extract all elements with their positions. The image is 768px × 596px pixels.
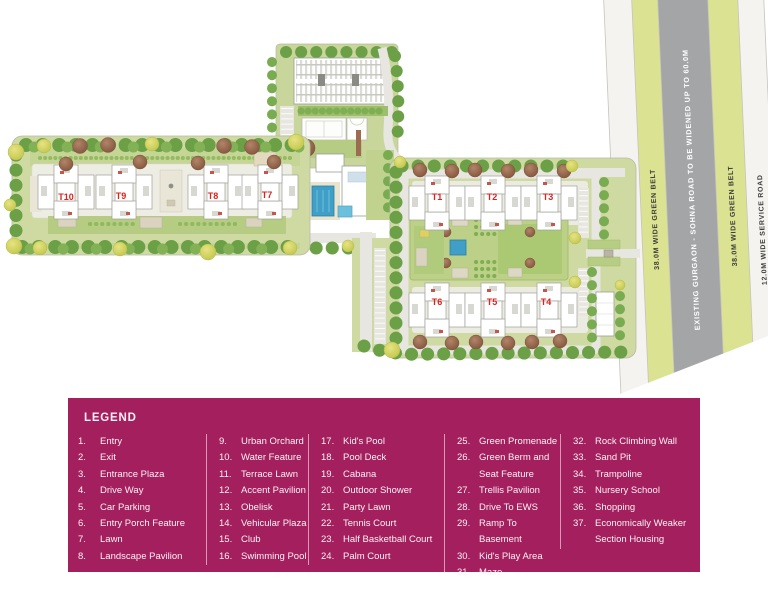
legend-column: 32.Rock Climbing Wall33.Sand Pit34.Tramp…: [560, 434, 700, 549]
legend-item: 16.Swimming Pool: [219, 549, 308, 565]
legend-item: 15.Club: [219, 532, 308, 548]
legend-item-number: 6.: [78, 516, 100, 532]
tower-label-t4: T4: [541, 297, 552, 307]
legend-item-label: Palm Court: [343, 549, 444, 565]
legend-item-number: 37.: [573, 516, 595, 549]
legend-item-number: 15.: [219, 532, 241, 548]
legend-item-label: Drive To EWS: [479, 500, 560, 516]
west-road: [360, 232, 372, 352]
legend-item: 14.Vehicular Plaza: [219, 516, 308, 532]
legend-item: 24.Palm Court: [321, 549, 444, 565]
legend-column: 9.Urban Orchard10.Water Feature11.Terrac…: [206, 434, 308, 565]
legend-item-number: 10.: [219, 450, 241, 466]
legend-item-label: Club: [241, 532, 308, 548]
legend-item: 22.Tennis Court: [321, 516, 444, 532]
entry-gate-north: [588, 240, 620, 249]
legend-item-number: 17.: [321, 434, 343, 450]
legend-item: 11.Terrace Lawn: [219, 467, 308, 483]
legend-item-number: 8.: [78, 549, 100, 565]
legend-item: 34.Trampoline: [573, 467, 700, 483]
legend-item-number: 28.: [457, 500, 479, 516]
legend-item-label: Nursery School: [595, 483, 700, 499]
legend-item-number: 4.: [78, 483, 100, 499]
legend-item: 8.Landscape Pavilion: [78, 549, 206, 565]
legend-item: 20.Outdoor Shower: [321, 483, 444, 499]
legend-item-label: Green Berm and Seat Feature: [479, 450, 560, 483]
legend-item-label: Kid's Play Area: [479, 549, 560, 565]
legend-item-number: 35.: [573, 483, 595, 499]
legend-item-number: 5.: [78, 500, 100, 516]
legend-item: 29.Ramp To Basement: [457, 516, 560, 549]
tower-label-t5: T5: [487, 297, 498, 307]
legend-item: 12.Accent Pavilion: [219, 483, 308, 499]
sand-pit: [420, 230, 429, 237]
legend-item-number: 26.: [457, 450, 479, 483]
tower-label-t10: T10: [58, 192, 74, 202]
legend-item: 33.Sand Pit: [573, 450, 700, 466]
legend-item-label: Sand Pit: [595, 450, 700, 466]
legend-item-label: Tennis Court: [343, 516, 444, 532]
legend-item-number: 13.: [219, 500, 241, 516]
legend-item: 3.Entrance Plaza: [78, 467, 206, 483]
legend-item-number: 16.: [219, 549, 241, 565]
tower-label-t6: T6: [432, 297, 443, 307]
legend-item-label: Water Feature: [241, 450, 308, 466]
legend-item: 37.Economically Weaker Section Housing: [573, 516, 700, 549]
legend-item-number: 29.: [457, 516, 479, 549]
legend-item-number: 34.: [573, 467, 595, 483]
tower-label-t8: T8: [208, 191, 219, 201]
legend-item-number: 22.: [321, 516, 343, 532]
legend-item-label: Outdoor Shower: [343, 483, 444, 499]
legend-panel: LEGEND 1.Entry2.Exit3.Entrance Plaza4.Dr…: [68, 398, 700, 572]
legend-item-number: 32.: [573, 434, 595, 450]
tower-label-t3: T3: [543, 192, 554, 202]
legend-columns: 1.Entry2.Exit3.Entrance Plaza4.Drive Way…: [78, 434, 700, 582]
legend-item: 18.Pool Deck: [321, 450, 444, 466]
legend-item-label: Half Basketball Court: [343, 532, 444, 548]
legend-item-number: 30.: [457, 549, 479, 565]
legend-item: 32.Rock Climbing Wall: [573, 434, 700, 450]
legend-item-label: Entry Porch Feature: [100, 516, 206, 532]
legend-item-label: Drive Way: [100, 483, 206, 499]
legend-item-label: Pool Deck: [343, 450, 444, 466]
legend-item-number: 24.: [321, 549, 343, 565]
legend-item: 4.Drive Way: [78, 483, 206, 499]
legend-item-number: 27.: [457, 483, 479, 499]
legend-item-label: Urban Orchard: [241, 434, 308, 450]
legend-item: 21.Party Lawn: [321, 500, 444, 516]
site-plan-page: 12.0M WIDE SERVICE ROAD 38.0M WIDE GREEN…: [0, 0, 768, 596]
legend-item-number: 12.: [219, 483, 241, 499]
legend-item: 1.Entry: [78, 434, 206, 450]
legend-item-label: Trellis Pavilion: [479, 483, 560, 499]
legend-item: 25.Green Promenade: [457, 434, 560, 450]
legend-item: 28.Drive To EWS: [457, 500, 560, 516]
tower-label-t2: T2: [487, 192, 498, 202]
legend-item: 2.Exit: [78, 450, 206, 466]
legend-item: 30.Kid's Play Area: [457, 549, 560, 565]
legend-item: 9.Urban Orchard: [219, 434, 308, 450]
legend-item-label: Party Lawn: [343, 500, 444, 516]
legend-item-label: Terrace Lawn: [241, 467, 308, 483]
legend-item: 17.Kid's Pool: [321, 434, 444, 450]
legend-item-number: 1.: [78, 434, 100, 450]
legend-item: 26.Green Berm and Seat Feature: [457, 450, 560, 483]
legend-item-number: 31.: [457, 565, 479, 581]
legend-item-label: Maze: [479, 565, 560, 581]
legend-item-label: Green Promenade: [479, 434, 560, 450]
car-icon: [604, 250, 613, 257]
legend-item-number: 14.: [219, 516, 241, 532]
legend-item-label: Cabana: [343, 467, 444, 483]
entry-gate-south: [588, 257, 620, 266]
legend-item-label: Shopping: [595, 500, 700, 516]
left-wing: T10 T9 T8 T7: [4, 134, 310, 260]
legend-item-label: Accent Pavilion: [241, 483, 308, 499]
legend-item: 31.Maze: [457, 565, 560, 581]
legend-item: 6.Entry Porch Feature: [78, 516, 206, 532]
legend-item-number: 23.: [321, 532, 343, 548]
legend-title: LEGEND: [84, 412, 700, 424]
legend-item-label: Trampoline: [595, 467, 700, 483]
legend-item-label: Economically Weaker Section Housing: [595, 516, 700, 549]
legend-item-number: 21.: [321, 500, 343, 516]
legend-item-number: 2.: [78, 450, 100, 466]
legend-column: 1.Entry2.Exit3.Entrance Plaza4.Drive Way…: [78, 434, 206, 565]
legend-item-number: 11.: [219, 467, 241, 483]
legend-item: 36.Shopping: [573, 500, 700, 516]
legend-item-label: Vehicular Plaza: [241, 516, 308, 532]
legend-item-label: Entrance Plaza: [100, 467, 206, 483]
legend-item: 23.Half Basketball Court: [321, 532, 444, 548]
legend-item-label: Kid's Pool: [343, 434, 444, 450]
legend-item-number: 25.: [457, 434, 479, 450]
west-parking: [374, 248, 386, 344]
legend-item: 5.Car Parking: [78, 500, 206, 516]
courtyard-pool: [450, 240, 466, 255]
legend-item-label: Swimming Pool: [241, 549, 308, 565]
legend-item-label: Landscape Pavilion: [100, 549, 206, 565]
club-building-1: [316, 154, 344, 172]
tree-row: [395, 56, 398, 142]
legend-item-number: 18.: [321, 450, 343, 466]
legend-item: 27.Trellis Pavilion: [457, 483, 560, 499]
accent-pavilion: [167, 200, 175, 206]
tower-label-t1: T1: [432, 192, 443, 202]
legend-item: 7.Lawn: [78, 532, 206, 548]
legend-item-number: 19.: [321, 467, 343, 483]
legend-item-label: Obelisk: [241, 500, 308, 516]
legend-column: 25.Green Promenade26.Green Berm and Seat…: [444, 434, 560, 582]
green-wall: [356, 130, 361, 156]
legend-item-number: 7.: [78, 532, 100, 548]
legend-item-label: Entry: [100, 434, 206, 450]
legend-column: 17.Kid's Pool18.Pool Deck19.Cabana20.Out…: [308, 434, 444, 565]
legend-item-number: 33.: [573, 450, 595, 466]
legend-item-label: Ramp To Basement: [479, 516, 560, 549]
legend-item-label: Rock Climbing Wall: [595, 434, 700, 450]
obelisk: [169, 184, 174, 189]
legend-item-label: Car Parking: [100, 500, 206, 516]
tower-label-t9: T9: [116, 191, 127, 201]
legend-item-number: 3.: [78, 467, 100, 483]
legend-item-number: 9.: [219, 434, 241, 450]
legend-item-label: Exit: [100, 450, 206, 466]
legend-item-number: 36.: [573, 500, 595, 516]
legend-item: 10.Water Feature: [219, 450, 308, 466]
legend-item: 13.Obelisk: [219, 500, 308, 516]
legend-item: 35.Nursery School: [573, 483, 700, 499]
legend-item-number: 20.: [321, 483, 343, 499]
kids-pool: [338, 206, 352, 217]
legend-item-label: Lawn: [100, 532, 206, 548]
tower-label-t7: T7: [262, 190, 273, 200]
legend-item: 19.Cabana: [321, 467, 444, 483]
play-structure: [416, 248, 427, 266]
